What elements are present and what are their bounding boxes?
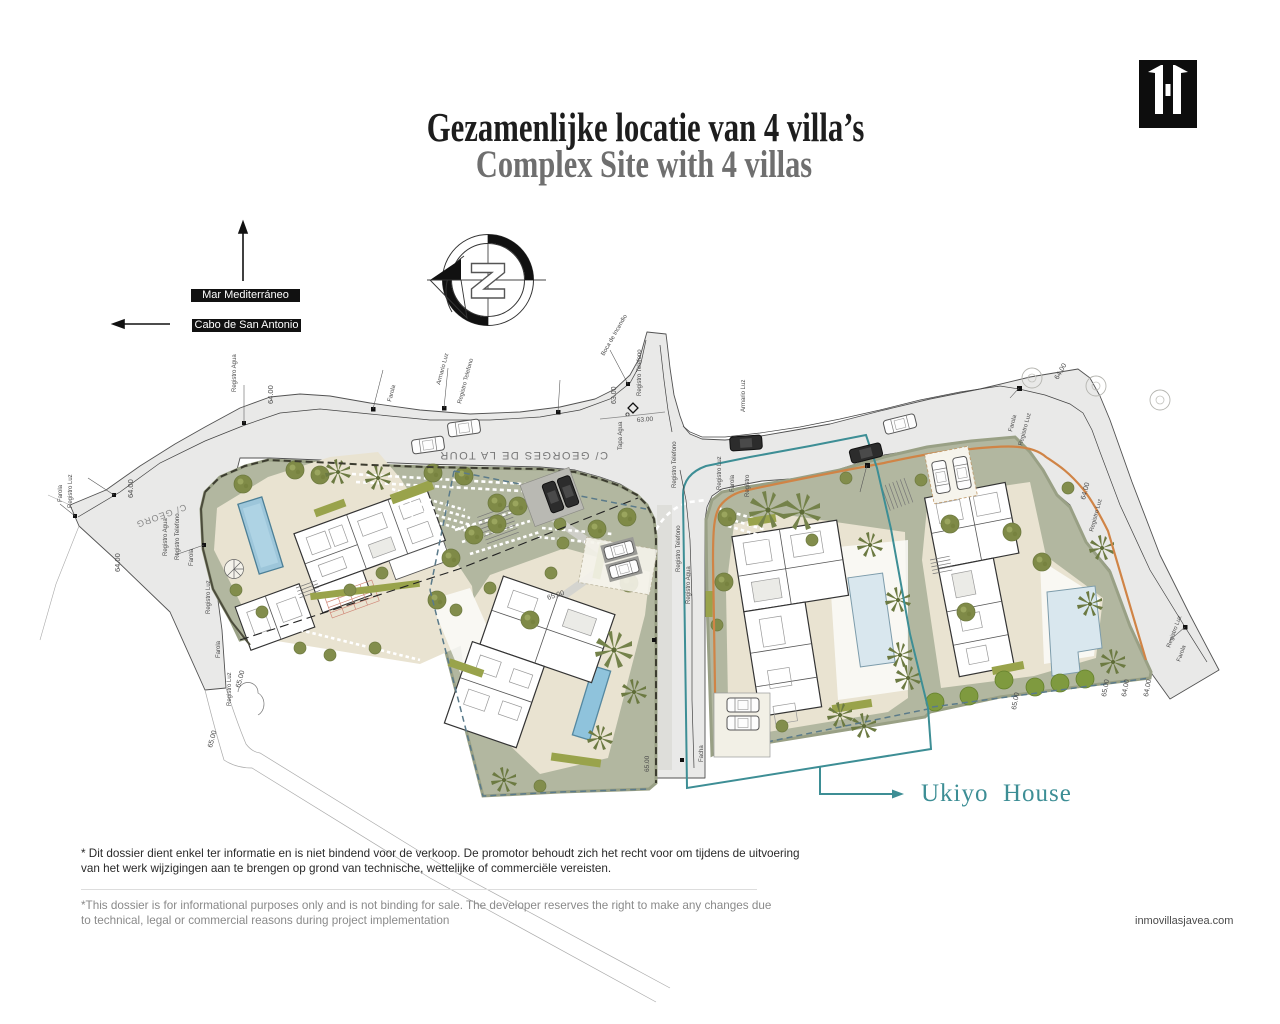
svg-text:63.00: 63.00 [611,386,618,404]
svg-text:Registro Agua: Registro Agua [232,354,238,392]
svg-text:Registro Luz: Registro Luz [227,672,233,706]
svg-text:Registro Telefono: Registro Telefono [175,513,181,560]
svg-text:Farola: Farola [730,474,736,492]
svg-text:64.00: 64.00 [1143,679,1153,698]
svg-text:64.00: 64.00 [126,479,135,498]
svg-text:64.00: 64.00 [113,553,122,572]
svg-text:Farola: Farola [189,548,195,566]
svg-text:Registro Agua: Registro Agua [163,518,169,556]
svg-text:Registro Telefono: Registro Telefono [672,441,678,488]
svg-text:Registro Telefono: Registro Telefono [457,357,475,404]
svg-text:Boca de Incendio: Boca de Incendio [601,313,630,357]
svg-text:Tapa Agua: Tapa Agua [618,421,624,450]
svg-text:Registro Luz: Registro Luz [717,456,723,490]
svg-text:Facha: Facha [699,745,705,762]
svg-text:Farola: Farola [58,484,64,502]
svg-text:Registro Agua: Registro Agua [686,566,692,604]
svg-text:65.00: 65.00 [235,670,246,689]
svg-text:Registro Telefono: Registro Telefono [676,525,682,572]
svg-text:Armario Luz: Armario Luz [741,380,747,412]
svg-text:Registro Luz: Registro Luz [68,474,74,508]
svg-text:Registro: Registro [745,474,751,497]
svg-text:Registro Luz: Registro Luz [206,580,212,614]
svg-text:63.00: 63.00 [637,416,654,424]
svg-text:C/ GEORGES DE LA TOUR: C/ GEORGES DE LA TOUR [439,449,608,461]
svg-text:65.00: 65.00 [207,730,218,749]
svg-text:64.00: 64.00 [266,385,275,404]
svg-text:Farola: Farola [216,640,222,658]
svg-text:65.00: 65.00 [644,755,651,772]
svg-text:Farola: Farola [387,384,397,403]
svg-text:Armario Luz: Armario Luz [436,353,450,386]
svg-text:Ukiyo House: Ukiyo House [921,780,1072,807]
svg-text:Registro Telefono: Registro Telefono [637,349,643,396]
svg-text:Complex Site with 4 villas: Complex Site with 4 villas [476,142,812,185]
